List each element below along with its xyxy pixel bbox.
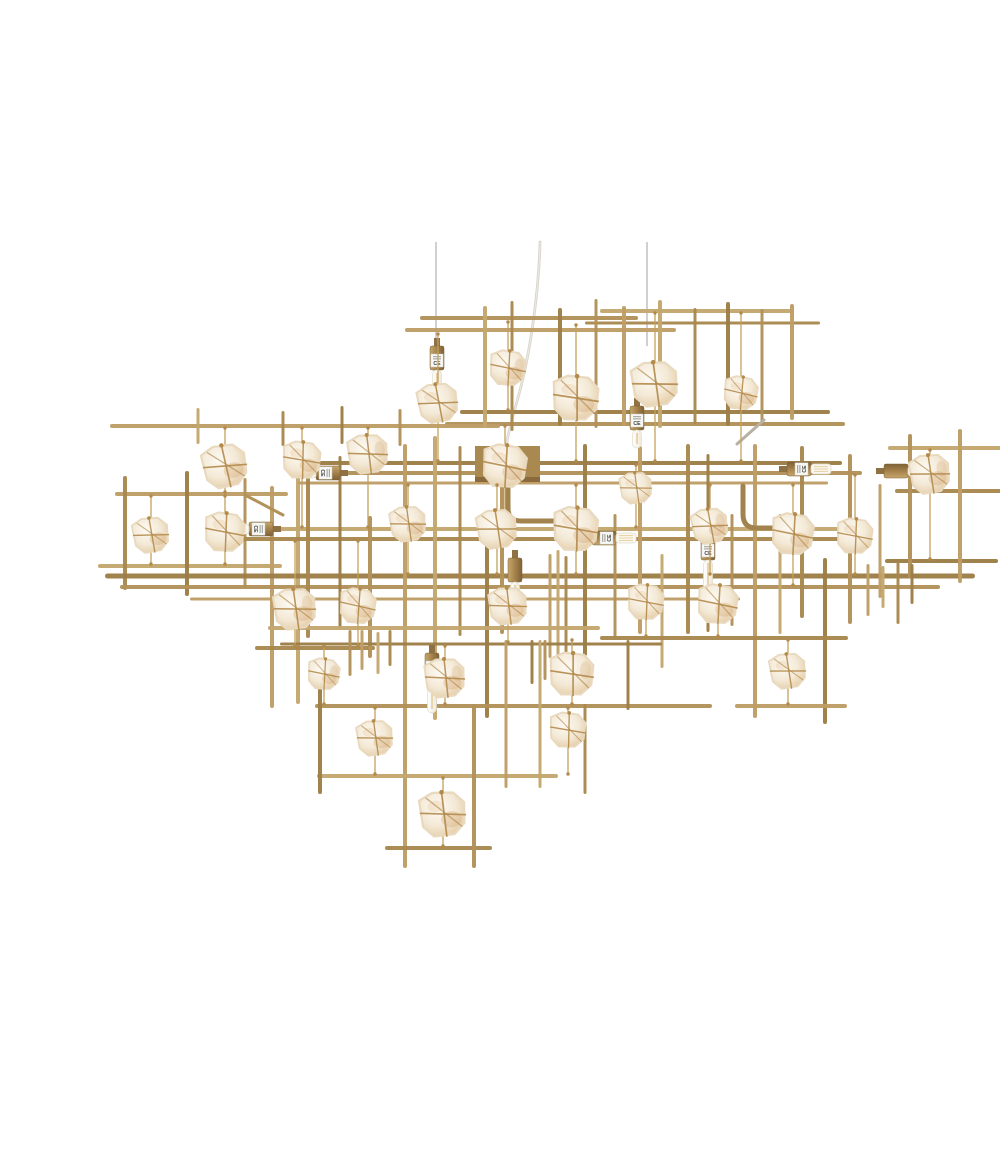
twine-knot [570,702,573,705]
twine-knot [441,844,444,847]
frame-rod [459,446,462,636]
frame-rod [790,304,794,420]
frame-rod [539,640,542,788]
frame-rod [544,640,547,680]
frame-rod [694,308,697,424]
socket-neck [512,550,518,559]
twine-knot [574,483,577,486]
twine-knot [928,448,931,451]
frame-rod [368,516,372,658]
frame-rod [110,424,500,428]
frame-rod [627,640,630,710]
twine-knot [928,557,931,560]
product-photo: CECECECECECECECE Large rectangular antiq… [40,16,1000,1141]
frame-rod [341,406,344,444]
ce-label-text: CE [319,469,325,477]
twine-knot [406,572,409,575]
frame-rod [105,574,975,579]
frame-rod [268,626,600,630]
twine-knot [223,494,226,497]
frame-rod [472,704,476,868]
frame-rod [879,484,882,598]
twine-knot [574,323,577,326]
twine-knot [634,463,637,466]
twine-knot [506,640,509,643]
twine-knot [708,572,711,575]
frame-rod [483,306,487,428]
chandelier-photo-svg: CECECECECECECECE [40,16,1000,1141]
label-fineprint [704,548,712,549]
twine-knot [653,459,656,462]
twine-knot [495,572,498,575]
frame-rod [761,309,764,422]
frame-rod [123,476,127,590]
frame-rod [361,630,364,670]
frame-rod [399,409,402,446]
label-fineprint [433,358,441,359]
twine-knot [739,311,742,314]
twine-knot [495,483,498,486]
frame-rod [867,564,870,616]
twine-knot [503,424,506,427]
twine-knot [574,459,577,462]
frame-rod [298,482,828,485]
label-fineprint [327,469,328,477]
twine-knot [853,572,856,575]
frame-rod [585,322,820,325]
socket-neck [429,645,435,654]
frame-rod [897,562,900,624]
twine-knot [443,702,446,705]
socket-body [884,464,908,478]
twine-knot [708,483,711,486]
twine-knot [506,320,509,323]
twine-knot [223,562,226,565]
ce-label-text: CE [704,551,712,557]
socket-neck [272,526,281,532]
label-fineprint [797,465,798,473]
frame-rod [349,630,352,676]
frame-rod [888,446,1000,450]
frame-rod [389,630,392,666]
frame-rod [622,306,626,426]
twine-knot [791,583,794,586]
ce-label-text: CE [433,361,441,367]
ce-label-text: CE [607,534,613,542]
frame-rod [197,408,200,444]
label-fineprint [262,525,263,533]
frame-rod [753,444,757,718]
twine-knot [566,706,569,709]
twine-knot [322,702,325,705]
twine-knot [506,408,509,411]
frame-rod [908,434,912,578]
twine-knot [406,483,409,486]
frame-rod [282,411,285,446]
frame-rod [317,774,558,778]
socket-neck [779,466,788,472]
twine-knot [443,644,446,647]
frame-rod [885,559,998,563]
frame-rod [115,492,288,496]
label-fineprint [604,534,605,542]
label-fineprint [633,416,641,417]
twine-knot [373,706,376,709]
twine-knot [300,426,303,429]
twine-knot [293,644,296,647]
twine-knot [791,483,794,486]
frame-rod [735,704,847,708]
ce-label-text: CE [252,525,258,533]
twine-knot [653,311,656,314]
label-fineprint [329,469,330,477]
twine-knot [366,426,369,429]
twine-knot [366,525,369,528]
twine-knot [356,539,359,542]
label-fineprint [260,525,261,533]
twine-knot [634,525,637,528]
label-fineprint [433,356,441,357]
twine-knot [436,459,439,462]
twine-knot [570,638,573,641]
frame-rod [460,410,830,414]
twine-knot [739,459,742,462]
twine-knot [293,539,296,542]
bulb-socket: CE [779,462,831,476]
frame-rod [823,558,827,724]
frame-rod [531,640,534,684]
twine-knot [300,525,303,528]
frame-rod [882,566,885,608]
twine-knot [566,772,569,775]
twine-knot [436,332,439,335]
socket-neck [876,468,885,474]
ce-label-text: CE [633,421,641,427]
frame-rod [377,632,380,674]
twine-knot [786,702,789,705]
twine-knot [356,644,359,647]
frame-rod [686,444,690,634]
socket-neck [434,338,440,347]
twine-knot [853,473,856,476]
socket-body [508,558,522,582]
frame-rod [505,640,508,788]
twine-knot [149,494,152,497]
twine-knot [786,638,789,641]
frame-rod [565,556,568,654]
twine-knot [716,634,719,637]
frame-rod [584,704,587,794]
label-fineprint [633,418,641,419]
twine-knot [149,562,152,565]
twine-knot [373,772,376,775]
twine-knot [223,490,226,493]
frame-rod [958,429,962,583]
frame-rod [120,585,940,589]
label-fineprint [602,534,603,542]
frame-rod [726,302,730,426]
twine-knot [322,644,325,647]
frame-rod [405,328,676,332]
label-fineprint [704,546,712,547]
frame-rod [600,636,848,640]
frame-rod [280,643,662,646]
label-fineprint [799,465,800,473]
socket-neck [339,470,348,476]
twine-knot [223,426,226,429]
frame-rod [420,316,638,320]
twine-knot [574,572,577,575]
ce-label-text: CE [802,465,808,473]
frame-rod [549,554,552,658]
frame-rod [911,564,914,604]
twine-knot [644,634,647,637]
twine-knot [441,776,444,779]
